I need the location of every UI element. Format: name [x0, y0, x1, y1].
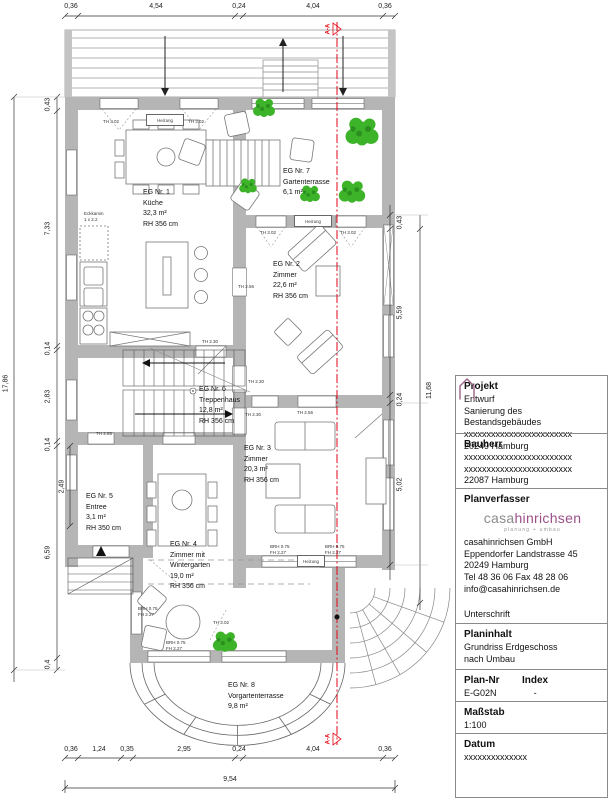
title-block-projekt: Projekt Entwurf Sanierung des Bestandsge…: [456, 376, 607, 433]
note-brh-4: BRH 0.75 FH 2.27: [166, 640, 186, 652]
deck-stair: [263, 60, 318, 97]
datum-value: xxxxxxxxxxxxxx: [464, 752, 601, 764]
note-th256-2: TH 2.56: [297, 410, 313, 416]
note-th302-2: TH 3.02: [188, 119, 204, 125]
dim-bottom-7: 0,36: [378, 746, 392, 753]
bauherr-text: xxxxxxxxxxxxxxxxxxxxxxxx xxxxxxxxxxxxxxx…: [464, 452, 601, 487]
note-th302-3: TH 3.02: [260, 230, 276, 236]
projekt-label: Projekt: [464, 381, 601, 392]
stair-marker-dot: [192, 390, 194, 392]
note-th230-3: TH 2.30: [245, 412, 261, 418]
index-label: Index: [522, 675, 548, 686]
radiator-room2: Heizung: [294, 215, 332, 227]
bauherr-label: Bauherr: [464, 439, 601, 450]
title-block-datum: Datum xxxxxxxxxxxxxx: [456, 733, 607, 797]
radiator-kitchen: Heizung: [146, 114, 184, 126]
note-th302-4: TH 3.02: [340, 230, 356, 236]
room-label-eg2: EG Nr. 2 Zimmer 22,6 m² RH 356 cm: [273, 260, 308, 302]
note-th256-1: TH 2.56: [238, 284, 254, 290]
massstab-value: 1:100: [464, 720, 601, 732]
dim-bottom-3: 0,35: [120, 746, 134, 753]
unterschrift-label: Unterschrift: [464, 609, 601, 619]
dim-top-4: 4,04: [306, 3, 320, 10]
room-label-eg3: EG Nr. 3 Zimmer 20,3 m² RH 356 cm: [244, 444, 279, 486]
radiator-room3: Heizung: [297, 555, 325, 567]
dim-top-2: 4,54: [149, 3, 163, 10]
note-brh-1: BRH 0.75 FH 2.27: [270, 544, 290, 556]
title-block-planverfasser: Planverfasser casahinrichsen planung + u…: [456, 488, 607, 623]
logo-tagline: planung + umbau: [504, 527, 561, 533]
plannr-value: E-G02N: [464, 688, 522, 700]
dim-bottom-4: 2,95: [177, 746, 191, 753]
room-label-eg7: EG Nr. 7 Gartenterrasse 6,1 m²: [283, 167, 330, 199]
note-th285: TH 2.85: [96, 431, 112, 437]
room-label-eg4: EG Nr. 4 Zimmer mit Wintergarten 19,0 m²…: [170, 540, 210, 593]
room-label-eg8: EG Nr. 8 Vorgartenterrasse 9,8 m²: [228, 681, 284, 713]
title-block-planinhalt: Planinhalt Grundriss Erdgeschoss nach Um…: [456, 623, 607, 669]
title-block-massstab: Maßstab 1:100: [456, 701, 607, 733]
plannr-label: Plan-Nr: [464, 675, 522, 686]
company-logo: casahinrichsen planung + umbau: [464, 508, 601, 533]
curved-stair: [350, 588, 450, 688]
logo-wordmark: casahinrichsen: [484, 510, 582, 526]
dim-bottom-6: 4,04: [306, 746, 320, 753]
room-label-eg6: EG Nr. 6 Treppenhaus 12,8 m² RH 356 cm: [199, 385, 240, 427]
note-brh-2: BRH 0.75 FH 2.27: [325, 544, 345, 556]
dim-bottom-total: 9,54: [223, 776, 237, 783]
house-icon: [456, 376, 478, 400]
planverfasser-label: Planverfasser: [464, 494, 601, 505]
dim-bottom-5: 0,24: [232, 746, 246, 753]
note-brh-3: BRH 0.75 FH 2.27: [138, 606, 158, 618]
note-th230-1: TH 2.30: [202, 339, 218, 345]
index-value: -: [522, 688, 548, 700]
dim-top-5: 0,36: [378, 3, 392, 10]
note-th302-5: TH 3.02: [213, 620, 229, 626]
company-address: casahinrichsen GmbH Eppendorfer Landstra…: [464, 537, 601, 595]
dim-top-3: 0,24: [232, 3, 246, 10]
title-block-bauherr: Bauherr xxxxxxxxxxxxxxxxxxxxxxxx xxxxxxx…: [456, 433, 607, 488]
note-th230-2: TH 2.30: [248, 379, 264, 385]
planinhalt-label: Planinhalt: [464, 629, 601, 640]
note-th302-1: TH 3.02: [103, 119, 119, 125]
room-label-eg1: EG Nr. 1 Küche 32,3 m² RH 356 cm: [143, 188, 178, 230]
title-block: Projekt Entwurf Sanierung des Bestandsge…: [455, 375, 608, 798]
deck-arrows: [161, 36, 347, 96]
note-eckkamin: Eckkamin 1 x 2.2: [84, 211, 104, 223]
title-block-plannr: Plan-Nr E-G02N Index -: [456, 669, 607, 701]
dim-top-1: 0,36: [64, 3, 78, 10]
garden-deck: [65, 30, 395, 97]
dim-bottom-1: 0,36: [64, 746, 78, 753]
dim-bottom-2: 1,24: [92, 746, 106, 753]
datum-label: Datum: [464, 739, 601, 750]
floor-plan-sheet: 0,36 4,54 0,24 4,04 0,36 0,36 1,24 0,35 …: [0, 0, 610, 800]
room-label-eg5: EG Nr. 5 Entree 3,1 m² RH 350 cm: [86, 492, 121, 534]
massstab-label: Maßstab: [464, 707, 601, 718]
planinhalt-text: Grundriss Erdgeschoss nach Umbau: [464, 642, 601, 665]
